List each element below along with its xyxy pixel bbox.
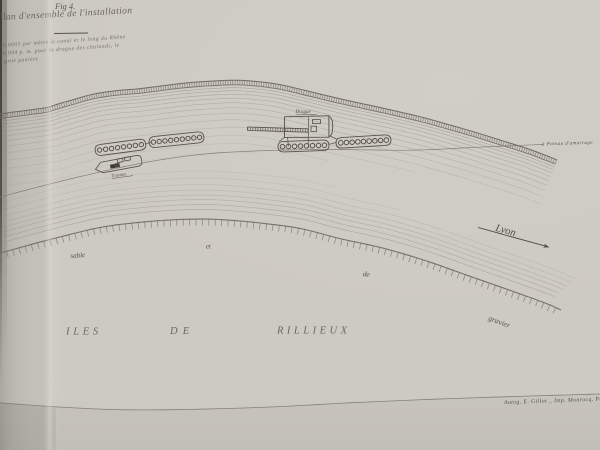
svg-text:et: et [206,244,212,251]
svg-text:à Poteau d'amarrage: à Poteau d'amarrage [542,141,593,148]
svg-text:Plan d'ensemble de l'installat: Plan d'ensemble de l'installation [0,6,133,23]
svg-text:Travaux: Travaux [111,171,127,178]
svg-text:gravier: gravier [487,313,511,329]
svg-text:sable: sable [70,251,85,260]
svg-text:DE: DE [169,326,194,337]
svg-text:de: de [362,269,371,279]
svg-text:r et la grue panière: r et la grue panière [0,56,39,66]
svg-text:RILLIEUX: RILLIEUX [276,326,351,337]
svg-text:Lyon: Lyon [493,223,517,239]
svg-text:ILES: ILES [65,327,102,338]
